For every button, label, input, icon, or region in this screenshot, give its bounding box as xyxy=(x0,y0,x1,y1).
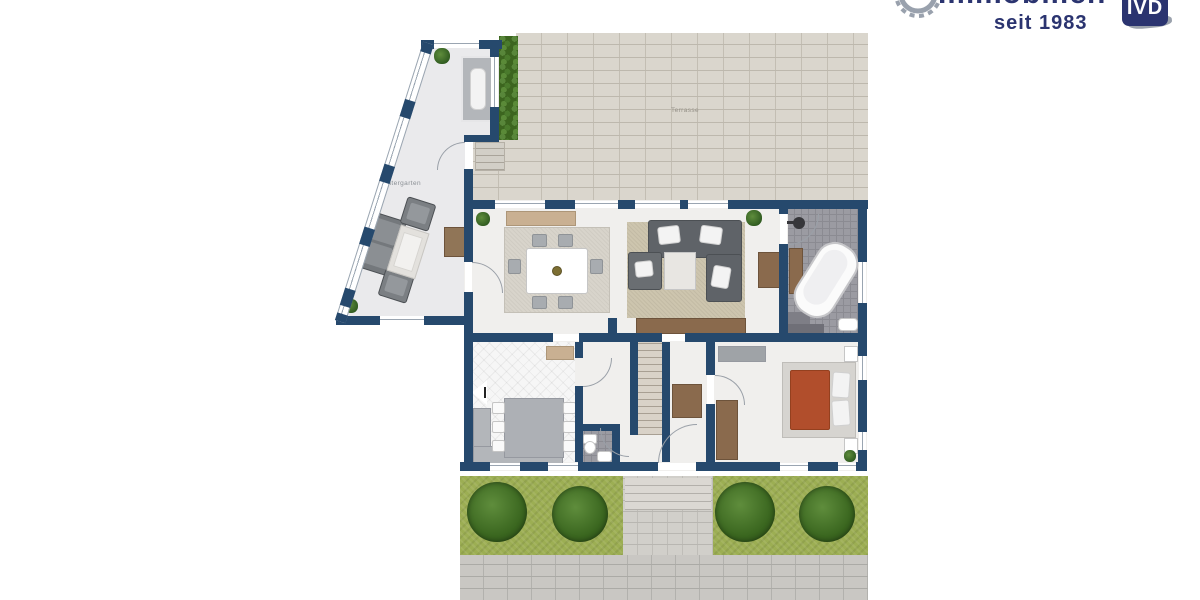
wall-segment xyxy=(460,462,490,471)
wall-segment xyxy=(472,333,553,342)
table-centerpiece xyxy=(552,266,562,276)
door-opening xyxy=(707,375,714,404)
wall-segment xyxy=(858,380,867,432)
door-opening xyxy=(553,334,579,341)
wall-segment xyxy=(618,200,635,209)
sofa-pillow xyxy=(657,225,681,246)
living-lowboard xyxy=(636,318,746,334)
wall-segment xyxy=(464,200,473,262)
kitchen-island xyxy=(504,398,564,458)
wall-segment xyxy=(685,333,858,342)
wall-segment xyxy=(808,462,838,471)
kitchen-chair xyxy=(492,440,505,452)
sidewalk xyxy=(460,555,868,600)
bush xyxy=(799,486,855,542)
kitchen-chair xyxy=(492,421,505,433)
bed-pillow xyxy=(831,371,851,398)
window xyxy=(859,432,866,450)
living-shelf xyxy=(758,252,780,288)
dining-chair xyxy=(532,234,547,247)
window xyxy=(491,57,498,107)
dining-chair xyxy=(558,296,573,309)
wall-segment xyxy=(520,462,548,471)
fireplace-tick xyxy=(484,387,486,398)
coffee-table xyxy=(664,252,696,290)
window xyxy=(688,201,728,208)
window xyxy=(490,463,520,470)
entrance-door-opening xyxy=(658,463,696,470)
bath-sink xyxy=(838,318,858,331)
wall-segment xyxy=(579,333,662,342)
brand-tagline: seit 1983 xyxy=(994,12,1088,35)
armchair-pillow xyxy=(634,260,654,278)
sofa-pillow xyxy=(699,225,723,246)
wall-segment xyxy=(578,462,658,471)
brand-badge: IVD xyxy=(1122,0,1168,26)
wall-segment xyxy=(464,292,473,316)
window xyxy=(838,463,856,470)
bush xyxy=(467,482,527,542)
wall-segment xyxy=(490,107,499,135)
bedroom-wall xyxy=(706,404,715,462)
bedroom-wardrobe xyxy=(716,400,738,460)
porch-bench xyxy=(470,68,486,110)
kitchen-chair xyxy=(492,402,505,414)
wintergarten-label: Wintergarten xyxy=(355,180,445,187)
wall-segment xyxy=(464,169,473,200)
sofa-pillow xyxy=(710,265,732,290)
door-opening xyxy=(465,262,472,292)
terrace-door xyxy=(575,201,618,208)
dining-chair xyxy=(508,259,521,274)
bedroom-wall xyxy=(706,342,715,375)
window xyxy=(859,262,866,303)
dining-sideboard xyxy=(506,211,576,226)
wc-sink xyxy=(597,451,612,462)
staircase xyxy=(638,342,662,435)
window xyxy=(495,201,545,208)
wall-segment xyxy=(680,200,688,209)
front-steps xyxy=(625,478,711,510)
potted-plant xyxy=(434,48,450,64)
wall-segment xyxy=(858,200,867,262)
wc-toilet-bowl xyxy=(584,441,596,454)
potted-plant xyxy=(844,450,856,462)
living-armchair xyxy=(628,252,662,290)
window xyxy=(780,463,808,470)
door-opening xyxy=(662,334,685,341)
wall-segment xyxy=(728,200,868,209)
floorplan-page: Terrasse Wintergarten xyxy=(0,0,1200,600)
potted-plant xyxy=(746,210,762,226)
wall-segment xyxy=(858,303,867,356)
hedge xyxy=(499,36,518,140)
wall-segment xyxy=(424,316,473,325)
window xyxy=(548,463,578,470)
bath-step xyxy=(788,324,824,333)
wall-segment xyxy=(464,316,473,462)
stair-wall xyxy=(630,342,638,435)
wall-segment xyxy=(464,135,499,142)
terrace-steps xyxy=(475,142,505,171)
terrace xyxy=(516,33,868,200)
window xyxy=(635,201,680,208)
potted-plant xyxy=(476,212,490,226)
door-opening xyxy=(780,214,787,244)
bush xyxy=(715,482,775,542)
bed-duvet xyxy=(790,370,830,430)
brand-name: Immobilien xyxy=(938,0,1106,11)
armchair-cushion xyxy=(384,274,408,296)
nightstand xyxy=(844,346,858,362)
armchair-cushion xyxy=(406,202,430,224)
bathroom-wall xyxy=(779,244,788,333)
stair-wall xyxy=(662,342,670,435)
wall-segment xyxy=(696,462,780,471)
wall-stub xyxy=(608,318,617,342)
wall-segment xyxy=(545,200,575,209)
bush xyxy=(552,486,608,542)
badge-text: IVD xyxy=(1122,0,1168,26)
window xyxy=(434,41,479,48)
dining-chair xyxy=(590,259,603,274)
bed-pillow xyxy=(831,399,851,426)
kitchen-sideboard xyxy=(546,346,574,360)
hall-dresser xyxy=(672,384,702,418)
wall-segment xyxy=(479,40,502,49)
rug-inner xyxy=(393,232,423,272)
wall-segment xyxy=(856,462,867,471)
kitchen-counter-left xyxy=(473,408,491,448)
wall-segment xyxy=(575,342,583,358)
window xyxy=(380,317,424,324)
door-opening xyxy=(465,142,472,169)
gear-icon xyxy=(892,0,944,22)
bedroom-dresser xyxy=(718,346,766,362)
dining-chair xyxy=(532,296,547,309)
terrace-label: Terrasse xyxy=(650,107,720,114)
window xyxy=(859,356,866,380)
dining-chair xyxy=(558,234,573,247)
wall-segment xyxy=(490,49,499,57)
